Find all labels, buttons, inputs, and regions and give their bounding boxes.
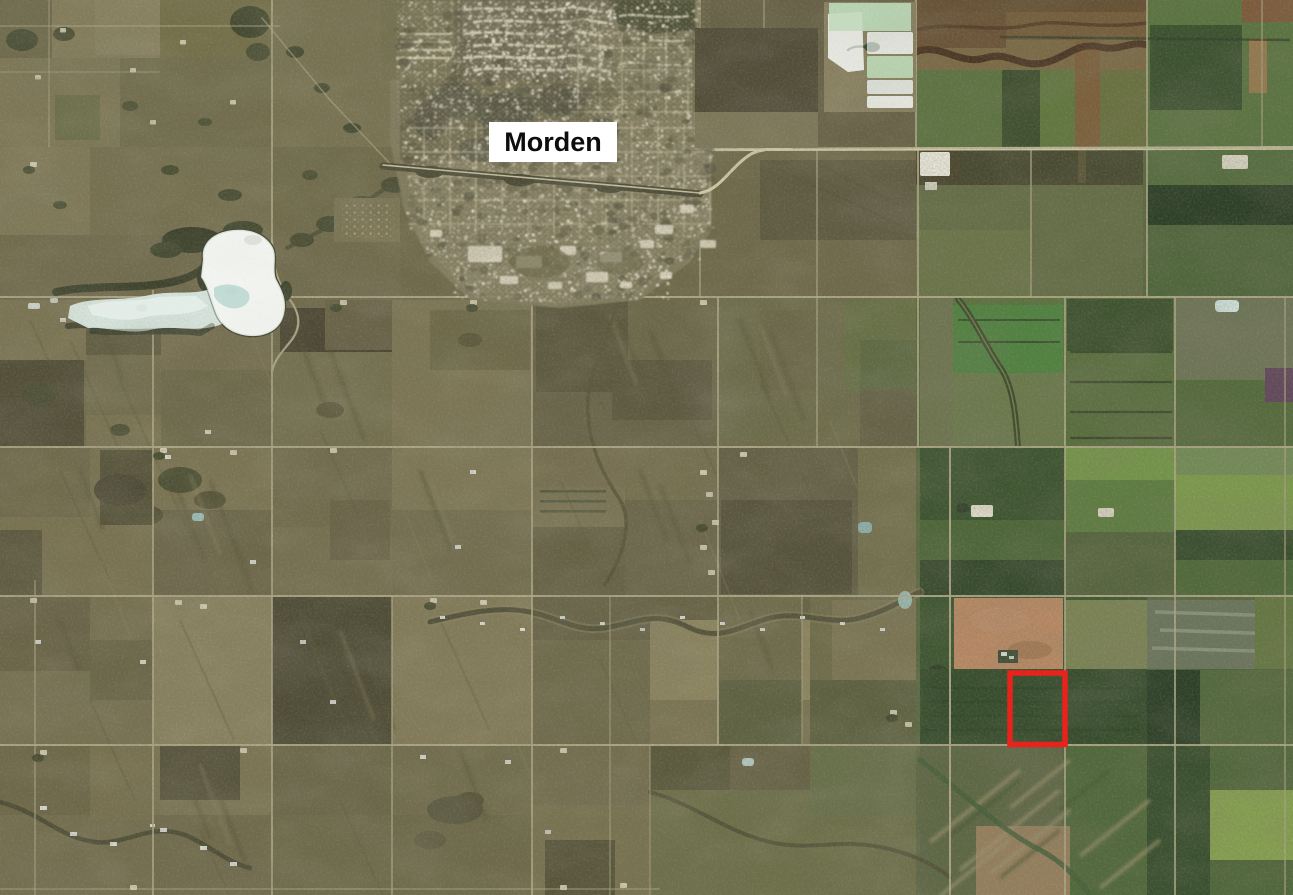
svg-text:Morden: Morden [504,127,602,157]
